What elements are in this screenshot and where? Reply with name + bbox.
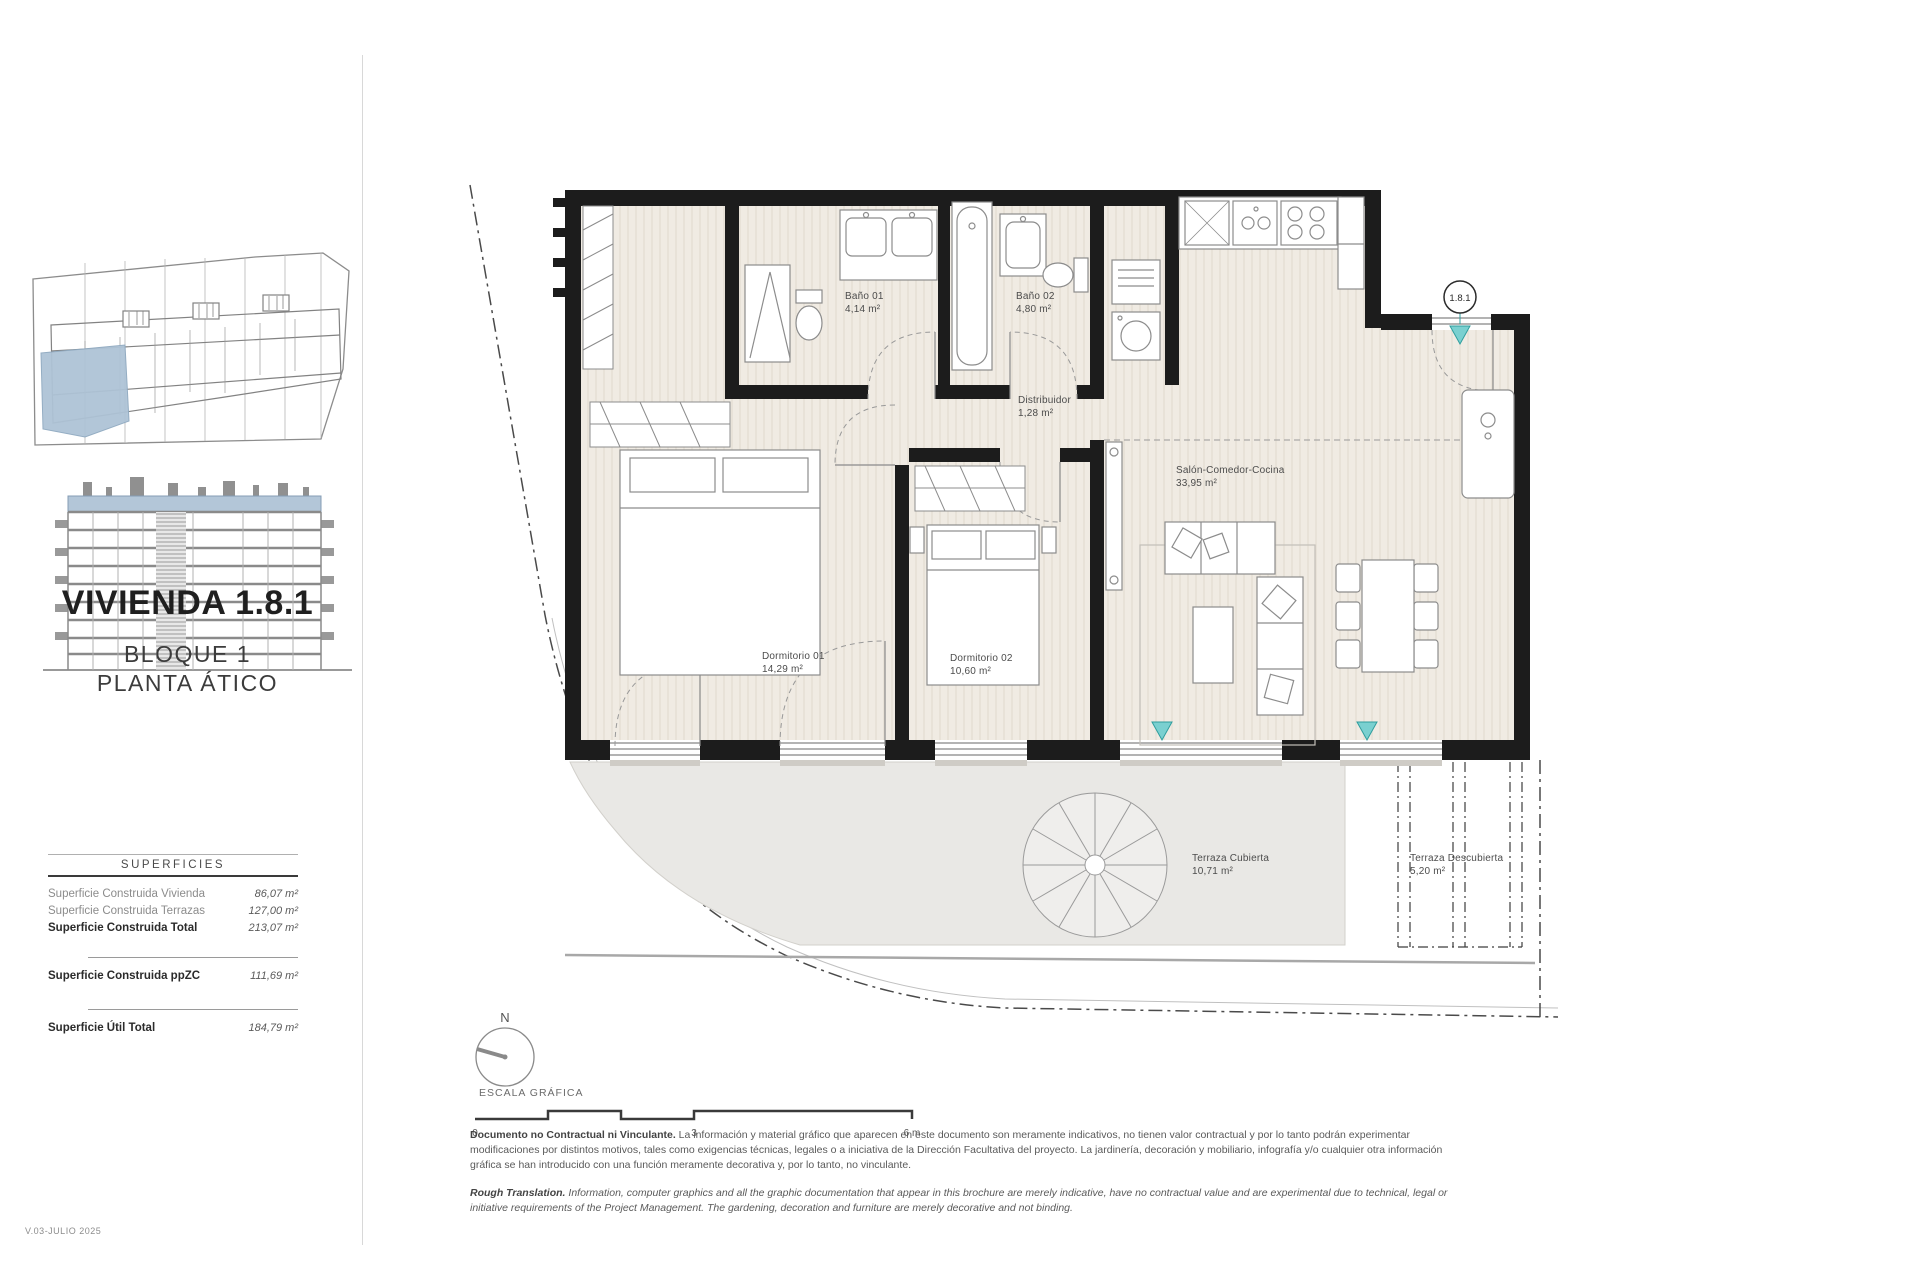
room-area: 14,29 m² [762,663,825,676]
floor-slabs [68,512,321,654]
row-label: Superficie Construida Terrazas [48,905,205,917]
room-area: 4,80 m² [1016,303,1055,316]
row-label: Superficie Útil Total [48,1022,155,1034]
scale-bar [475,1111,912,1119]
atico-floor-highlight [68,496,321,512]
table-row: Superficie Construida Total 213,07 m² [48,922,298,939]
disclaimer-english: Rough Translation. Information, computer… [470,1186,1462,1216]
row-value: 127,00 m² [248,905,298,917]
table-row: Superficie Construida Vivienda 86,07 m² [48,888,298,905]
room-label-dorm01: Dormitorio 01 14,29 m² [762,650,825,676]
disclaimer-lead: Documento no Contractual ni Vinculante. [470,1129,676,1141]
room-label-terraza-descubierta: Terraza Descubierta 5,20 m² [1410,852,1503,878]
scale-label: ESCALA GRÁFICA [479,1086,583,1099]
unit-subtitle: BLOQUE 1 PLANTA ÁTICO [40,640,335,698]
table-divider [88,1009,298,1010]
disclaimer-text: Information, computer graphics and all t… [470,1187,1447,1214]
unit-title: VIVIENDA 1.8.1 [40,584,335,623]
room-name: Baño 02 [1016,291,1055,302]
row-value: 86,07 m² [255,888,298,900]
room-area: 10,60 m² [950,665,1013,678]
row-value: 111,69 m² [250,970,298,982]
surfaces-table: Superficie Construida Vivienda 86,07 m² … [48,888,298,1039]
room-label-dorm02: Dormitorio 02 10,60 m² [950,652,1013,678]
room-area: 4,14 m² [845,303,884,316]
block-label: BLOQUE 1 [40,640,335,669]
room-label-terraza-cubierta: Terraza Cubierta 10,71 m² [1192,852,1269,878]
room-name: Baño 01 [845,291,884,302]
room-name: Distribuidor [1018,395,1071,406]
unit-badge: 1.8.1 [1444,281,1476,313]
version-label: V.03-JULIO 2025 [25,1226,101,1236]
floor-plan-svg: 1.8.1 [440,140,1580,1040]
dining-set [1336,560,1438,672]
sidebar-divider [362,55,363,1245]
north-label: N [500,1010,509,1025]
table-row: Superficie Útil Total 184,79 m² [48,1022,298,1039]
row-value: 213,07 m² [248,922,298,934]
room-name: Salón-Comedor-Cocina [1176,465,1285,476]
row-value: 184,79 m² [248,1022,298,1034]
room-name: Dormitorio 01 [762,651,825,662]
room-label-bano01: Baño 01 4,14 m² [845,290,884,316]
surfaces-header: SUPERFICIES [48,854,298,877]
room-label-distribuidor: Distribuidor 1,28 m² [1018,394,1071,420]
room-name: Terraza Cubierta [1192,853,1269,864]
unit-badge-text: 1.8.1 [1449,293,1470,304]
floor-label: PLANTA ÁTICO [40,669,335,698]
room-area: 10,71 m² [1192,865,1269,878]
row-label: Superficie Construida Vivienda [48,888,205,900]
disclaimer-spanish: Documento no Contractual ni Vinculante. … [470,1128,1462,1174]
room-area: 33,95 m² [1176,477,1285,490]
row-label: Superficie Construida Total [48,922,197,934]
disclaimer-lead: Rough Translation. [470,1187,565,1199]
room-name: Dormitorio 02 [950,653,1013,664]
table-row: Superficie Construida ppZC 111,69 m² [48,970,298,987]
room-label-salon: Salón-Comedor-Cocina 33,95 m² [1176,464,1285,490]
room-area: 1,28 m² [1018,407,1071,420]
table-divider [88,957,298,958]
brochure-page: VIVIENDA 1.8.1 BLOQUE 1 PLANTA ÁTICO SUP… [0,0,1920,1280]
room-label-bano02: Baño 02 4,80 m² [1016,290,1055,316]
room-area: 5,20 m² [1410,865,1503,878]
room-name: Terraza Descubierta [1410,853,1503,864]
bedroom1-furniture [620,450,820,675]
roof-elements [83,477,309,496]
scale-block: N ESCALA GRÁFICA 0 3 6 m [465,1000,935,1145]
north-arrow-icon [476,1028,534,1086]
site-key-plan [25,183,360,455]
row-label: Superficie Construida ppZC [48,970,200,982]
spiral-stair [1023,793,1167,937]
table-row: Superficie Construida Terrazas 127,00 m² [48,905,298,922]
highlighted-unit [41,345,129,437]
